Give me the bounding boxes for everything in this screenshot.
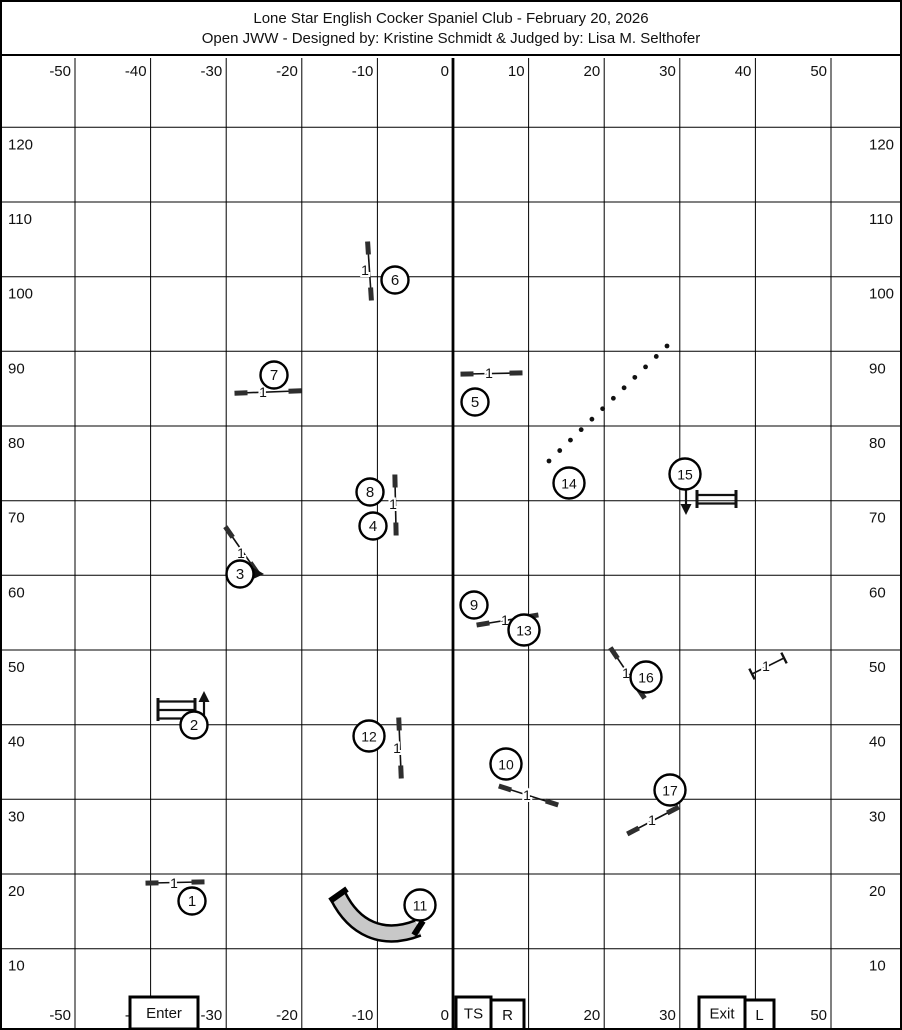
weave-pole-dot bbox=[590, 417, 595, 422]
jump-12-bar-count-label: 1 bbox=[393, 740, 401, 756]
x-axis-label-top: 10 bbox=[508, 63, 525, 80]
y-axis-label-left: 50 bbox=[8, 659, 25, 676]
spread-15-direction-arrowhead-icon bbox=[681, 504, 692, 515]
y-axis-label-left: 90 bbox=[8, 360, 25, 377]
footer-box-label-r: R bbox=[502, 1007, 513, 1024]
x-axis-label-top: 0 bbox=[441, 63, 449, 80]
weave-pole-dot bbox=[654, 354, 659, 359]
event-title: Lone Star English Cocker Spaniel Club - … bbox=[2, 9, 900, 29]
y-axis-label-right: 110 bbox=[869, 211, 893, 228]
jump-10-wing-cap bbox=[499, 786, 511, 790]
jump-16-wing-cap bbox=[610, 648, 617, 659]
y-axis-label-left: 100 bbox=[8, 286, 33, 303]
y-axis-label-right: 30 bbox=[869, 808, 886, 825]
jump-4-8-bar-count-label: 1 bbox=[389, 496, 397, 512]
y-axis-label-right: 70 bbox=[869, 510, 886, 527]
x-axis-label-top: -30 bbox=[201, 63, 223, 80]
jump-unnumbered-tick-cap bbox=[781, 653, 786, 664]
obstacle-number-7: 7 bbox=[270, 367, 278, 384]
weave-pole-dot bbox=[622, 385, 627, 390]
jump-unnumbered-tick-cap bbox=[749, 669, 754, 680]
x-axis-label-bottom: -20 bbox=[276, 1007, 298, 1024]
x-axis-label-bottom: 30 bbox=[659, 1007, 676, 1024]
obstacle-number-2: 2 bbox=[190, 717, 198, 734]
weave-pole-dot bbox=[579, 427, 584, 432]
obstacle-number-3: 3 bbox=[236, 566, 244, 583]
x-axis-label-top: 30 bbox=[659, 63, 676, 80]
jump-unnumbered-bar-count-label: 1 bbox=[762, 658, 770, 674]
x-axis-label-bottom: 20 bbox=[584, 1007, 601, 1024]
weave-pole-dot bbox=[643, 365, 648, 370]
footer-box-label-l: L bbox=[755, 1007, 763, 1024]
weave-pole-dot bbox=[557, 448, 562, 453]
spread-2-direction-arrowhead-icon bbox=[199, 691, 210, 702]
jump-6-wing-cap bbox=[368, 242, 369, 255]
x-axis-label-top: -40 bbox=[125, 63, 147, 80]
title-block: Lone Star English Cocker Spaniel Club - … bbox=[2, 2, 900, 56]
y-axis-label-right: 40 bbox=[869, 734, 886, 751]
jump-6-wing-cap bbox=[371, 288, 372, 301]
y-axis-label-right: 20 bbox=[869, 883, 886, 900]
obstacle-number-10: 10 bbox=[498, 757, 514, 773]
jump-5-bar-count-label: 1 bbox=[485, 365, 493, 381]
obstacle-number-8: 8 bbox=[366, 484, 374, 501]
weave-pole-dot bbox=[665, 344, 670, 349]
weave-pole-dot bbox=[547, 459, 552, 464]
jump-17-wing-cap bbox=[627, 828, 639, 834]
y-axis-label-left: 120 bbox=[8, 136, 33, 153]
x-axis-label-top: 40 bbox=[735, 63, 752, 80]
jump-10-wing-cap bbox=[546, 801, 558, 805]
jump-12-wing-cap bbox=[399, 718, 400, 731]
jump-6-bar-count-label: 1 bbox=[361, 262, 369, 278]
jump-16-bar-count-label: 1 bbox=[622, 665, 630, 681]
obstacle-number-15: 15 bbox=[677, 467, 693, 483]
x-axis-label-top: 50 bbox=[810, 63, 827, 80]
obstacle-number-4: 4 bbox=[369, 518, 377, 535]
y-axis-label-right: 120 bbox=[869, 136, 894, 153]
x-axis-label-bottom: 50 bbox=[810, 1007, 827, 1024]
x-axis-label-top: -20 bbox=[276, 63, 298, 80]
weave-pole-dot bbox=[568, 438, 573, 443]
y-axis-label-left: 20 bbox=[8, 883, 25, 900]
obstacle-number-16: 16 bbox=[638, 670, 654, 686]
obstacle-number-1: 1 bbox=[188, 893, 196, 910]
y-axis-label-left: 40 bbox=[8, 734, 25, 751]
x-axis-label-bottom: 0 bbox=[441, 1007, 449, 1024]
course-subtitle: Open JWW - Designed by: Kristine Schmidt… bbox=[2, 29, 900, 49]
jump-3-bar-count-label: 1 bbox=[237, 545, 245, 561]
x-axis-label-bottom: -30 bbox=[201, 1007, 223, 1024]
y-axis-label-right: 100 bbox=[869, 286, 894, 303]
y-axis-label-left: 110 bbox=[8, 211, 32, 228]
y-axis-label-left: 70 bbox=[8, 510, 25, 527]
y-axis-label-left: 30 bbox=[8, 808, 25, 825]
jump-9-13-wing-cap bbox=[477, 623, 490, 625]
x-axis-label-bottom: -50 bbox=[49, 1007, 71, 1024]
jump-7-bar bbox=[241, 391, 295, 393]
obstacle-number-9: 9 bbox=[470, 597, 478, 614]
x-axis-label-top: -10 bbox=[352, 63, 374, 80]
y-axis-label-left: 60 bbox=[8, 584, 25, 601]
obstacle-number-6: 6 bbox=[391, 272, 399, 289]
obstacle-number-17: 17 bbox=[662, 783, 678, 799]
obstacle-number-13: 13 bbox=[516, 623, 532, 639]
weave-pole-dot bbox=[632, 375, 637, 380]
y-axis-label-right: 10 bbox=[869, 958, 886, 975]
x-axis-label-top: 20 bbox=[584, 63, 601, 80]
obstacle-number-14: 14 bbox=[561, 476, 577, 492]
y-axis-label-right: 60 bbox=[869, 584, 886, 601]
weave-pole-dot bbox=[600, 406, 605, 411]
footer-box-label-ts: TS bbox=[464, 1006, 483, 1023]
jump-17-bar-count-label: 1 bbox=[648, 812, 656, 828]
weave-pole-dot bbox=[611, 396, 616, 401]
x-axis-label-bottom: -10 bbox=[352, 1007, 374, 1024]
y-axis-label-left: 10 bbox=[8, 958, 25, 975]
course-diagram: -50-50-40-40-30-30-20-20-10-100010102020… bbox=[2, 2, 902, 1030]
jump-17-wing-cap bbox=[667, 807, 679, 813]
y-axis-label-right: 80 bbox=[869, 435, 886, 452]
y-axis-label-left: 80 bbox=[8, 435, 25, 452]
obstacle-number-11: 11 bbox=[413, 898, 428, 914]
obstacle-number-12: 12 bbox=[361, 729, 377, 745]
jump-1-bar-count-label: 1 bbox=[170, 875, 178, 891]
y-axis-label-right: 50 bbox=[869, 659, 886, 676]
course-map-page: Lone Star English Cocker Spaniel Club - … bbox=[0, 0, 902, 1030]
y-axis-label-right: 90 bbox=[869, 360, 886, 377]
jump-10-bar-count-label: 1 bbox=[523, 787, 531, 803]
jump-12-wing-cap bbox=[401, 766, 402, 779]
footer-box-label-enter: Enter bbox=[146, 1005, 182, 1022]
footer-box-label-exit: Exit bbox=[709, 1006, 735, 1023]
obstacle-number-5: 5 bbox=[471, 394, 479, 411]
x-axis-label-top: -50 bbox=[49, 63, 71, 80]
